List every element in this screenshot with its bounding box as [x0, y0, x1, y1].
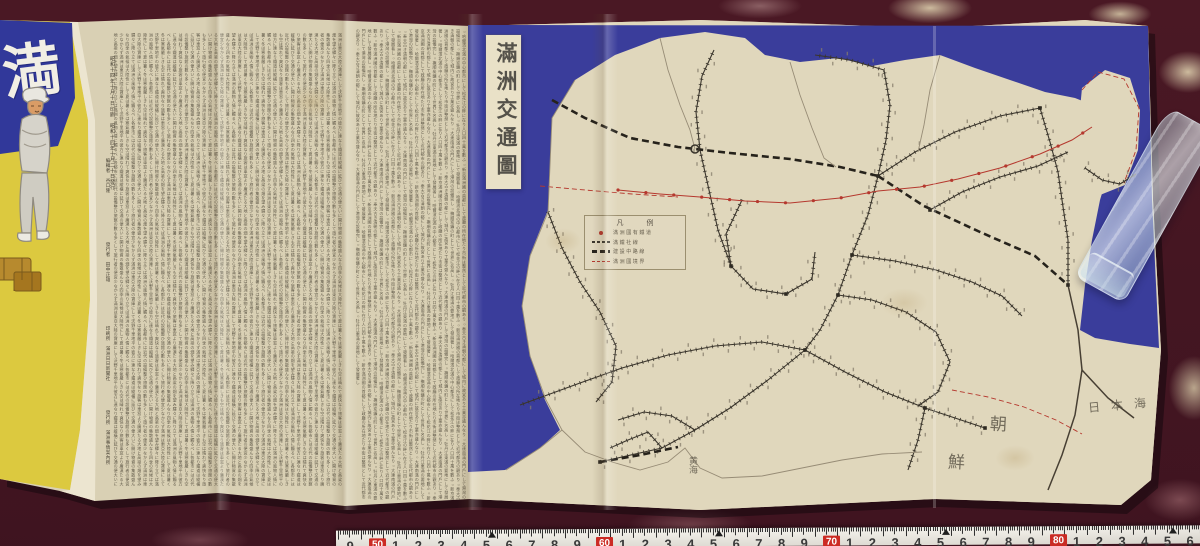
ruler-tick [1155, 526, 1156, 535]
ruler-arrow-marker [1169, 528, 1177, 534]
ruler-tick [422, 530, 423, 534]
region-label: 朝 [989, 410, 1007, 436]
ruler-tick [363, 530, 364, 534]
ruler-tick [726, 528, 727, 532]
ruler-tick [894, 527, 895, 534]
legend-label: 滿鐵社線 [613, 239, 639, 246]
ruler-decade-number: 60 [596, 537, 613, 546]
ruler-tick [974, 527, 975, 536]
ruler-tick [853, 527, 854, 531]
ruler-tick [778, 528, 779, 532]
ruler-tick [590, 529, 591, 533]
ruler-tick [1112, 526, 1113, 530]
ruler-tick [379, 530, 380, 534]
ruler-tick [989, 527, 990, 531]
ruler-tick [899, 527, 900, 531]
ruler-tick [406, 530, 407, 539]
ruler-tick [1114, 526, 1115, 530]
ruler-tick [919, 527, 920, 531]
ruler-tick [901, 527, 902, 531]
ruler-tick [835, 528, 836, 532]
ruler-tick [962, 527, 963, 534]
ruler-tick [967, 527, 968, 531]
ruler-tick [338, 531, 339, 540]
ruler-tick [628, 529, 629, 533]
colophon-role: 編輯者 谷口隆 [96, 158, 112, 238]
ruler-tick [542, 529, 543, 538]
ruler-tick [642, 529, 643, 533]
ruler-tick [349, 531, 350, 538]
ruler-tick [404, 530, 405, 534]
ruler-arrow-marker [942, 529, 950, 535]
ruler-tick [883, 527, 884, 536]
ruler-tick [1017, 526, 1018, 530]
ruler-tick [531, 529, 532, 536]
ruler-tick [619, 529, 620, 533]
ruler-tick [424, 530, 425, 534]
ruler-tick [978, 527, 979, 531]
ruler-tick [1051, 526, 1052, 530]
ruler-tick [969, 527, 970, 531]
ruler-tick [858, 527, 859, 531]
ruler-tick [649, 529, 650, 533]
ruler-tick [683, 529, 684, 533]
ruler-tick [1119, 526, 1120, 530]
ruler-tick [436, 530, 437, 534]
ruler-tick [749, 528, 750, 532]
ruler-arrow-marker [715, 530, 723, 536]
ruler-tick [1042, 526, 1043, 535]
ruler-tick [887, 527, 888, 531]
ruler-digit: 3 [664, 537, 671, 546]
ruler-tick [442, 530, 443, 534]
ruler-tick [1196, 525, 1197, 529]
colophon-role: 印刷所 滿洲日日新聞社 [96, 326, 112, 406]
ruler-tick [762, 528, 763, 532]
ruler-tick [472, 530, 473, 534]
ruler-digit: 4 [914, 535, 921, 546]
ruler-tick [438, 530, 439, 534]
ruler-tick [803, 528, 804, 535]
ruler-digit: 1 [846, 535, 853, 546]
ruler-tick [960, 527, 961, 531]
ruler-tick [1194, 525, 1195, 529]
ruler-tick [656, 529, 657, 538]
ruler-tick [576, 529, 577, 536]
ruler-tick [1071, 526, 1072, 530]
ruler-tick [708, 528, 709, 532]
ruler-digit: 5 [1164, 534, 1171, 546]
ruler-digit: 9 [347, 539, 354, 546]
ruler-tick [733, 528, 734, 532]
ruler-tick [1182, 525, 1183, 529]
ruler-tick [699, 528, 700, 532]
ruler-tick [454, 530, 455, 534]
ruler-tick [415, 530, 416, 534]
ruler-tick [996, 527, 997, 536]
ruler-tick [994, 527, 995, 531]
ruler-tick [463, 530, 464, 537]
ruler-tick [647, 529, 648, 533]
ruler-digit: 1 [1073, 534, 1080, 546]
ruler-tick [828, 528, 829, 532]
ruler-tick [1130, 526, 1131, 530]
ruler-tick [1039, 526, 1040, 530]
ruler-tick [1151, 526, 1152, 530]
ruler-tick [458, 530, 459, 534]
ruler-tick [506, 530, 507, 534]
ruler-tick [377, 530, 378, 534]
ruler-tick [408, 530, 409, 534]
ruler-digit: 9 [801, 536, 808, 546]
ruler-digit: 7 [755, 536, 762, 546]
ruler-tick [508, 530, 509, 537]
ruler-tick [1019, 526, 1020, 535]
ruler-tick [1146, 526, 1147, 530]
ruler-tick [522, 529, 523, 533]
ruler-tick [758, 528, 759, 535]
ruler-tick [740, 528, 741, 532]
ruler-tick [529, 529, 530, 533]
ruler-tick [724, 528, 725, 537]
ruler-digit: 5 [937, 535, 944, 546]
ruler-tick [985, 527, 986, 534]
ruler-tick [939, 527, 940, 534]
ruler-tick [867, 527, 868, 531]
ruler-tick [999, 527, 1000, 531]
ruler-tick [980, 527, 981, 531]
ruler-tick [1101, 526, 1102, 530]
ruler-tick [1030, 526, 1031, 533]
ruler-tick [413, 530, 414, 534]
ruler-tick [865, 527, 866, 531]
ruler-tick [1085, 526, 1086, 530]
ruler-tick [1096, 526, 1097, 530]
ruler-digit: 4 [1141, 534, 1148, 546]
ruler-tick [810, 528, 811, 532]
ruler-tick [781, 528, 782, 535]
ruler-tick [806, 528, 807, 532]
ruler-tick [1178, 525, 1179, 534]
ruler-tick [599, 529, 600, 536]
ruler-tick [547, 529, 548, 533]
ruler-tick [735, 528, 736, 535]
ruler-tick [760, 528, 761, 532]
ruler-tick [1060, 526, 1061, 530]
ruler-tick [971, 527, 972, 531]
ruler-tick [1187, 525, 1188, 529]
ruler-tick [638, 529, 639, 533]
ruler-digit: 8 [778, 536, 785, 546]
ruler-tick [1058, 526, 1059, 530]
ruler-tick [370, 530, 371, 534]
ruler-tick [613, 529, 614, 533]
ruler-tick [983, 527, 984, 531]
ruler-tick [747, 528, 748, 537]
ruler-tick [517, 530, 518, 534]
ruler-tick [1117, 526, 1118, 530]
ruler-tick [1044, 526, 1045, 530]
legend-symbol-rail [592, 241, 610, 243]
ruler-digit: 4 [687, 536, 694, 546]
ruler-tick [1067, 526, 1068, 530]
ruler-tick [697, 528, 698, 532]
ruler-tick [855, 527, 856, 531]
ruler-tick [1026, 526, 1027, 530]
ruler-tick [860, 527, 861, 536]
ruler-tick [921, 527, 922, 531]
body-text-block-left: 滿洲は東亞大陸の寶庫にして沃野千里地平の彼方に連なり鐵道は縱橫に延びて交通の便大… [113, 33, 343, 489]
ruler-tick [833, 528, 834, 532]
ruler-tick [765, 528, 766, 532]
ruler-decade-number: 50 [369, 538, 386, 546]
ruler-tick [1110, 526, 1111, 535]
ruler-digit: 6 [959, 535, 966, 546]
ruler-tick [910, 527, 911, 531]
ruler-tick [692, 528, 693, 532]
ruler-tick [710, 528, 711, 532]
ruler-tick [890, 527, 891, 531]
ruler-digit: 6 [1186, 533, 1193, 546]
legend-label: 滿洲國境界 [613, 258, 646, 265]
ruler-tick [526, 529, 527, 533]
ruler-tick [1046, 526, 1047, 530]
ruler-tick [1021, 526, 1022, 530]
legend-row: 滿鐵社線 [589, 238, 681, 248]
ruler-tick [665, 529, 666, 533]
ruler-tick [401, 530, 402, 534]
ruler-tick [831, 528, 832, 532]
ruler-tick [1003, 527, 1004, 531]
ruler-tick [390, 530, 391, 534]
ruler-tick [976, 527, 977, 531]
ruler-tick [1035, 526, 1036, 530]
ruler-tick [485, 530, 486, 537]
ruler-tick [515, 530, 516, 534]
ruler-tick [1089, 526, 1090, 530]
ruler-tick [640, 529, 641, 533]
ruler-tick [1162, 526, 1163, 530]
ruler-tick [588, 529, 589, 538]
ruler-tick [849, 528, 850, 535]
ruler-tick [892, 527, 893, 531]
ruler-tick [796, 528, 797, 532]
legend-label: 建設中路線 [613, 248, 646, 255]
ruler-digit: 8 [1005, 535, 1012, 546]
ruler-tick [440, 530, 441, 537]
ruler-digit: 1 [619, 537, 626, 546]
ruler-tick [935, 527, 936, 531]
ruler-tick [688, 528, 689, 532]
ruler-tick [1037, 526, 1038, 530]
ruler-digit: 2 [1096, 534, 1103, 546]
ruler-tick [538, 529, 539, 533]
ruler-tick [1103, 526, 1104, 530]
ruler-tick [635, 529, 636, 533]
suitcase-illustration [0, 254, 50, 302]
ruler-tick [694, 528, 695, 532]
ruler-tick [558, 529, 559, 533]
ruler-tick [581, 529, 582, 533]
ruler-tick [429, 530, 430, 539]
ruler-tick [499, 530, 500, 534]
legend-row: 滿洲國境界 [589, 257, 681, 267]
ruler-tick [504, 530, 505, 534]
ruler-decade-number: 80 [1050, 534, 1067, 546]
ruler-tick [388, 530, 389, 534]
ruler-tick [1135, 526, 1136, 530]
ruler-tick [356, 531, 357, 535]
ruler-tick [551, 529, 552, 533]
ruler-tick [1048, 526, 1049, 530]
ruler-digit: 2 [642, 537, 649, 546]
ruler-tick [751, 528, 752, 532]
ruler-tick [563, 529, 564, 533]
ruler-tick [535, 529, 536, 533]
ruler-tick [1123, 526, 1124, 530]
legend-symbol-dot [599, 231, 603, 235]
ruler-digit: 2 [415, 538, 422, 546]
ruler-decade-number: 70 [823, 536, 840, 546]
ruler-tick [826, 528, 827, 535]
colophon-role: 發行所 滿洲事情案內所 [96, 410, 112, 490]
ruler-tick [644, 529, 645, 536]
map-title-box: 滿洲交通圖 [486, 35, 521, 189]
ruler-tick [871, 527, 872, 534]
ruler-tick [347, 531, 348, 535]
ruler-tick [361, 530, 362, 539]
ruler-tick [1092, 526, 1093, 530]
ruler-tick [878, 527, 879, 531]
ruler-tick [1153, 526, 1154, 530]
ruler-tick [533, 529, 534, 533]
ruler-digit: 3 [437, 538, 444, 546]
ruler-tick [896, 527, 897, 531]
ruler-tick [520, 530, 521, 539]
ruler-tick [467, 530, 468, 534]
ruler-tick [951, 527, 952, 536]
ruler-tick [808, 528, 809, 532]
ruler-tick [769, 528, 770, 537]
ruler-tick [386, 530, 387, 534]
ruler-tick [862, 527, 863, 531]
ruler-tick [756, 528, 757, 532]
ruler-digit: 9 [1028, 534, 1035, 546]
ruler-tick [930, 527, 931, 531]
ruler-tick [392, 530, 393, 534]
ruler-tick [819, 528, 820, 532]
ruler-tick [1098, 526, 1099, 533]
ruler-digit: 4 [460, 538, 467, 546]
ruler-tick [928, 527, 929, 536]
ruler-tick [1033, 526, 1034, 530]
ruler-tick [1010, 527, 1011, 531]
ruler-tick [399, 530, 400, 534]
ruler-tick [924, 527, 925, 531]
ruler-tick [456, 530, 457, 534]
ruler-tick [601, 529, 602, 533]
ruler-tick [824, 528, 825, 532]
ruler-tick [685, 528, 686, 532]
ruler-tick [342, 531, 343, 535]
ruler-tick [606, 529, 607, 533]
ruler-tick [992, 527, 993, 531]
ruler-tick [417, 530, 418, 537]
ruler-tick [1105, 526, 1106, 530]
ruler-tick [1080, 526, 1081, 530]
ruler-tick [1132, 526, 1133, 535]
ruler-tick [433, 530, 434, 534]
ruler-tick [1142, 526, 1143, 530]
ruler-tick [660, 529, 661, 533]
ruler-tick [1126, 526, 1127, 530]
ruler-tick [374, 530, 375, 534]
ruler-tick [880, 527, 881, 531]
ruler-tick [510, 530, 511, 534]
ruler-tick [447, 530, 448, 534]
ruler-tick [1157, 526, 1158, 530]
legend-row: 建設中路線 [589, 247, 681, 257]
legend-rows: 滿洲國有鐵道滿鐵社線建設中路線滿洲國境界 [589, 228, 681, 266]
ruler-tick [651, 529, 652, 533]
ruler-tick [706, 528, 707, 532]
ruler-tick [915, 527, 916, 531]
ruler-tick [926, 527, 927, 531]
legend-symbol-thick [592, 250, 610, 253]
ruler-tick [626, 529, 627, 533]
ruler-tick [549, 529, 550, 533]
ruler-tick [352, 531, 353, 535]
ruler-tick [917, 527, 918, 534]
ruler-tick [1137, 526, 1138, 530]
ruler-tick [653, 529, 654, 533]
ruler-tick [667, 529, 668, 536]
ruler-tick [1139, 526, 1140, 530]
ruler-digit: 3 [1118, 534, 1125, 546]
ruler-tick [1082, 526, 1083, 530]
ruler-tick [937, 527, 938, 531]
ruler-tick [358, 530, 359, 534]
ruler-tick [681, 529, 682, 533]
ruler-tick [381, 530, 382, 534]
ruler-tick [461, 530, 462, 534]
ruler-tick [955, 527, 956, 531]
ruler-tick [569, 529, 570, 533]
ruler-digit: 5 [710, 536, 717, 546]
ruler-tick [908, 527, 909, 531]
ruler-tick [669, 529, 670, 533]
ruler-tick [703, 528, 704, 532]
ruler-tick [753, 528, 754, 532]
ruler-tick [885, 527, 886, 531]
ruler-tick [663, 529, 664, 533]
ruler-tick [1014, 526, 1015, 530]
ruler-tick [617, 529, 618, 533]
ruler-tick [397, 530, 398, 534]
ruler-tick [821, 528, 822, 532]
ruler-tick [1128, 526, 1129, 530]
ruler-tick [594, 529, 595, 533]
ruler-tick [728, 528, 729, 532]
ruler-tick [678, 529, 679, 538]
ruler-tick [474, 530, 475, 539]
ruler-tick [1144, 526, 1145, 533]
ruler-tick [585, 529, 586, 533]
ruler-tick [731, 528, 732, 532]
ruler-tick [672, 529, 673, 533]
ruler-tick [712, 528, 713, 535]
ruler-tick [1087, 526, 1088, 535]
